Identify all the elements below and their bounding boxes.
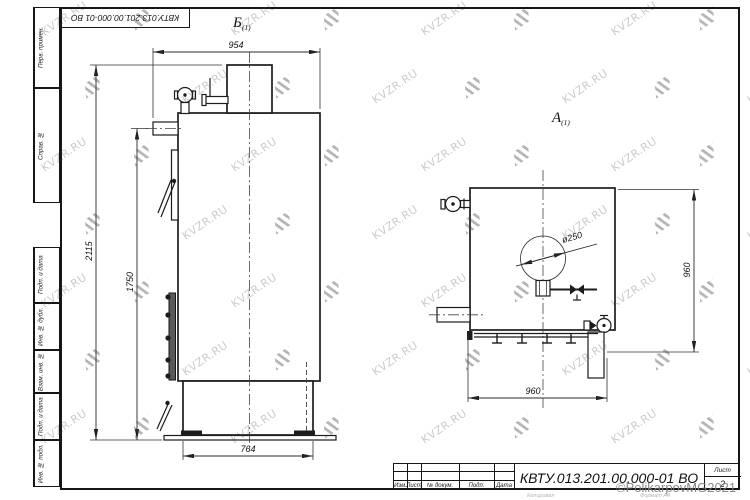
margin-field-label: Справ. №	[34, 89, 47, 202]
title-col-doc: № докум.	[421, 480, 459, 491]
title-col-date: Дата	[494, 480, 514, 491]
margin-field-label: Перв. примен.	[34, 8, 47, 87]
margin-field-blank	[47, 441, 59, 486]
margin-field-podp-data-1: Подп. и дата	[33, 247, 60, 303]
margin-field-label: Инв. № дубл.	[34, 304, 47, 349]
margin-field-label: Взам. инв. №	[34, 351, 47, 392]
margin-field-inv-dubl: Инв. № дубл.	[33, 303, 60, 350]
margin-field-blank	[47, 304, 59, 349]
drawing-frame	[60, 7, 740, 490]
margin-field-label: Подп. и дата	[34, 248, 47, 302]
title-block-gridline	[394, 471, 514, 472]
corner-designation-box: КВТУ.013.201.00.000-01 ВО	[60, 7, 190, 28]
margin-field-blank	[47, 248, 59, 302]
corner-designation-text: КВТУ.013.201.00.000-01 ВО	[71, 13, 179, 23]
margin-field-blank	[47, 351, 59, 392]
margin-field-blank	[47, 89, 59, 202]
margin-field-label: Инв. № подл.	[34, 441, 47, 486]
sheet-label: Лист	[704, 464, 741, 476]
margin-field-label: Подп. и дата	[34, 394, 47, 439]
margin-field-blank	[47, 394, 59, 439]
margin-field-inv-podl: Инв. № подл.	[33, 440, 60, 487]
margin-field-vzam-inv: Взам. инв. №	[33, 350, 60, 393]
copyright-text: ©PolikarpovMG2021	[616, 480, 736, 495]
margin-field-perv-primen: Перв. примен.	[33, 7, 60, 88]
margin-field-sprav-n: Справ. №	[33, 88, 60, 203]
copy-note: Копировал	[527, 493, 554, 499]
title-col-sign: Подп.	[459, 480, 494, 491]
margin-field-podp-data-2: Подп. и дата	[33, 393, 60, 440]
margin-field-blank	[47, 8, 59, 87]
title-col-list: Лист	[407, 480, 421, 491]
